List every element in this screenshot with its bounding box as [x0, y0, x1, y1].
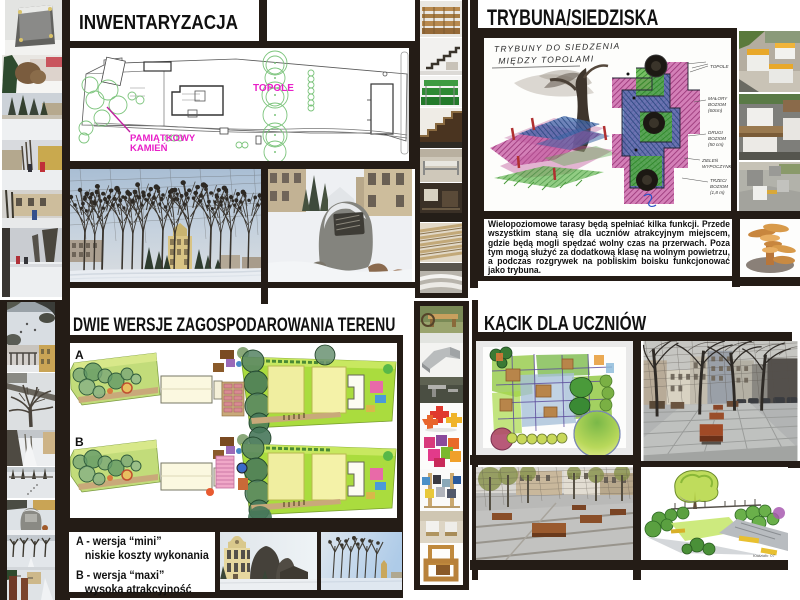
svg-text:A: A [75, 348, 84, 362]
svg-text:MAŁORY: MAŁORY [708, 96, 728, 101]
svg-text:TOPOLE: TOPOLE [253, 83, 294, 94]
svg-text:WYPOCZYNK.: WYPOCZYNK. [702, 164, 731, 169]
svg-text:BOZIOM: BOZIOM [708, 102, 726, 107]
svg-text:BOZIOM: BOZIOM [708, 136, 726, 141]
svg-text:ZIELEŃ: ZIELEŃ [701, 157, 719, 163]
svg-text:TRZECI: TRZECI [710, 178, 727, 183]
svg-text:(50 cm): (50 cm) [708, 142, 724, 147]
svg-text:TRYBUNY DO SIEDZENIA: TRYBUNY DO SIEDZENIA [494, 41, 621, 54]
svg-text:DRUGI: DRUGI [708, 130, 724, 135]
svg-text:MIĘDZY TOPOLAMI: MIĘDZY TOPOLAMI [498, 53, 594, 66]
svg-text:BOZIOM: BOZIOM [710, 184, 728, 189]
svg-text:KAMIEŃ: KAMIEŃ [130, 143, 168, 154]
svg-text:B: B [75, 435, 84, 449]
svg-text:TOPOLE: TOPOLE [710, 64, 729, 69]
svg-text:(60cm): (60cm) [708, 108, 723, 113]
svg-text:Kadzidło '07: Kadzidło '07 [753, 553, 775, 558]
svg-text:(1,8 m): (1,8 m) [710, 190, 725, 195]
